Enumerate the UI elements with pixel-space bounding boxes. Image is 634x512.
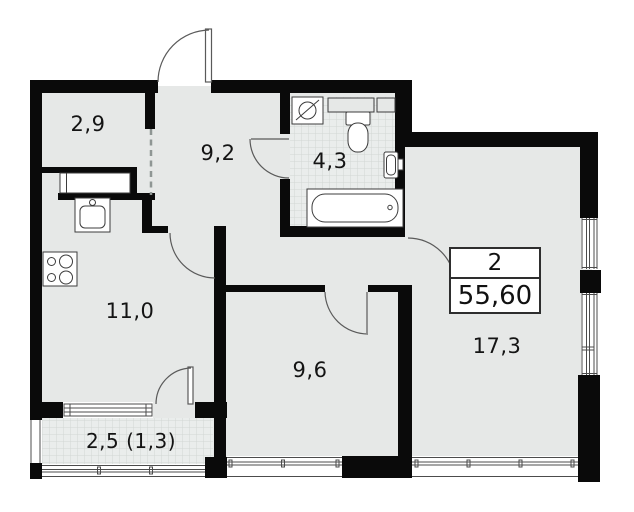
living-room-side-window-upper-icon xyxy=(581,218,598,269)
room-label-bedroom: 9,6 xyxy=(293,358,328,382)
total-area: 55,60 xyxy=(451,279,539,312)
room-label-entry-hall: 2,9 xyxy=(71,112,106,136)
room-label-bathroom: 4,3 xyxy=(313,149,348,173)
room-label-kitchen: 11,0 xyxy=(106,299,155,323)
living-room-window-icon xyxy=(412,456,578,478)
floor-plan: 2,9 9,2 4,3 11,0 9,6 17,3 2,5 (1,3) 2 55… xyxy=(0,0,634,512)
wardrobe-icon xyxy=(60,173,130,193)
balcony-left-wall xyxy=(30,418,42,464)
stove-icon xyxy=(43,252,77,286)
toilet-icon xyxy=(346,112,370,152)
bathtub-icon xyxy=(307,189,403,227)
bedroom-window-icon xyxy=(227,456,342,478)
room-label-corridor: 9,2 xyxy=(201,141,236,165)
washing-machine-icon xyxy=(292,97,323,124)
room-label-balcony: 2,5 (1,3) xyxy=(86,429,176,453)
apartment-info-box: 2 55,60 xyxy=(449,247,541,314)
rooms-count: 2 xyxy=(451,249,539,279)
room-label-living-room: 17,3 xyxy=(473,334,522,358)
living-room-side-window-lower-icon xyxy=(581,293,598,375)
kitchen-window-icon xyxy=(63,402,153,418)
kitchen-sink-icon xyxy=(75,198,110,232)
balcony-glazing-icon xyxy=(42,464,213,478)
entrance-door-icon xyxy=(158,29,212,82)
shelf-icon xyxy=(328,98,395,112)
